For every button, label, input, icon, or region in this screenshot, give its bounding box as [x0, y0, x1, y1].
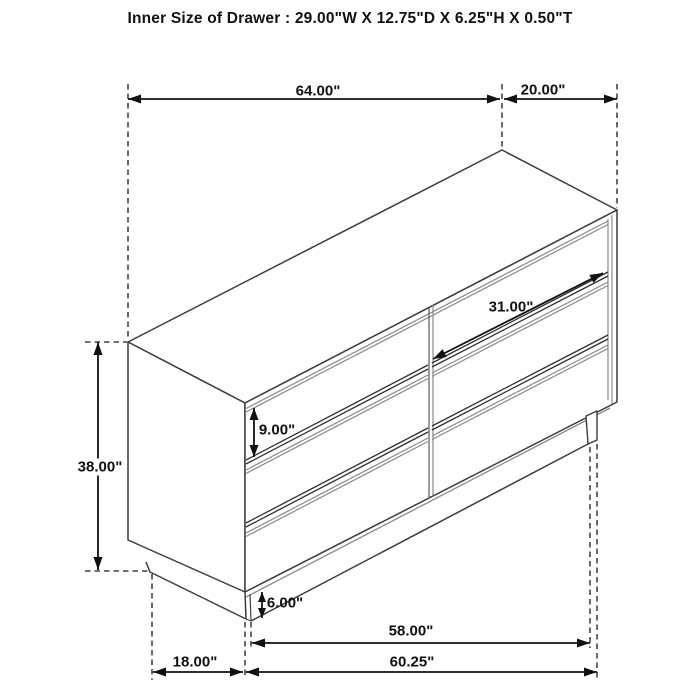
front-right-leg [586, 411, 597, 444]
dim-label-overall-height: 38.00" [75, 459, 126, 476]
dim-label-base-depth: 18.00" [173, 655, 218, 670]
dim-label-leg-span-width: 58.00" [389, 624, 434, 639]
dim-label-drawer-opening-width: 31.00" [489, 300, 534, 315]
dimension-diagram-page: Inner Size of Drawer : 29.00"W X 12.75"D… [0, 0, 700, 700]
dim-label-top-width: 64.00" [296, 84, 341, 99]
dresser-line-drawing [0, 0, 700, 700]
cabinet-body [128, 150, 617, 592]
dim-label-base-height: 6.00" [267, 596, 303, 611]
dim-label-base-width: 60.25" [390, 655, 435, 670]
dim-label-drawer-front-height: 9.00" [259, 423, 295, 438]
dim-label-top-depth: 20.00" [521, 83, 566, 98]
